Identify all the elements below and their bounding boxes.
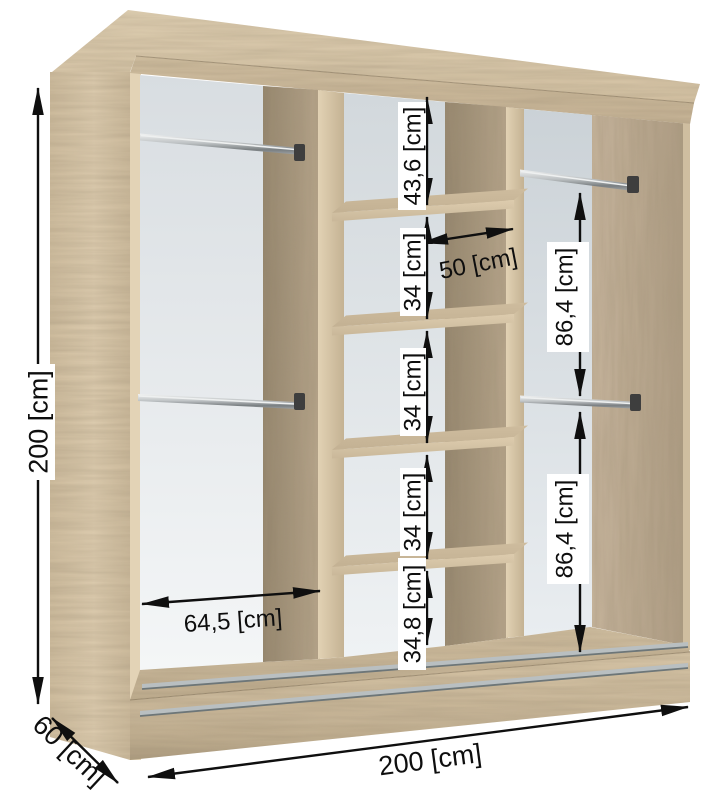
dim-height-label: 200 [cm] [24,370,54,474]
dim-right-gap-2-label: 86,4 [cm] [552,480,579,579]
rail-end-cap [627,176,639,193]
wardrobe-diagram-svg: 200 [cm] 60 [cm] 200 [cm] 64,5 [cm] 50 [… [0,0,712,791]
wardrobe-dimension-diagram: 200 [cm] 60 [cm] 200 [cm] 64,5 [cm] 50 [… [0,0,712,791]
dim-mid-gap-3-label: 34 [cm] [400,353,427,432]
dim-mid-gap-5-label: 34,8 [cm] [400,565,427,664]
left-wall-front-edge [130,72,141,760]
dim-mid-gap-2-label: 34 [cm] [400,233,427,312]
dim-right-gap-1-label: 86,4 [cm] [552,248,579,347]
left-partition-side-face [263,86,320,662]
rail-end-cap [630,394,641,411]
right-wall-front-edge [683,123,690,650]
rail-end-cap [294,393,305,410]
left-back-panel [140,75,265,670]
right-side-wall-inner-face [592,115,690,650]
dim-mid-gap-4-label: 34 [cm] [400,473,427,552]
dim-mid-gap-1-label: 43,6 [cm] [400,107,427,206]
left-side-wall [50,72,130,760]
rail-end-cap [294,144,305,161]
